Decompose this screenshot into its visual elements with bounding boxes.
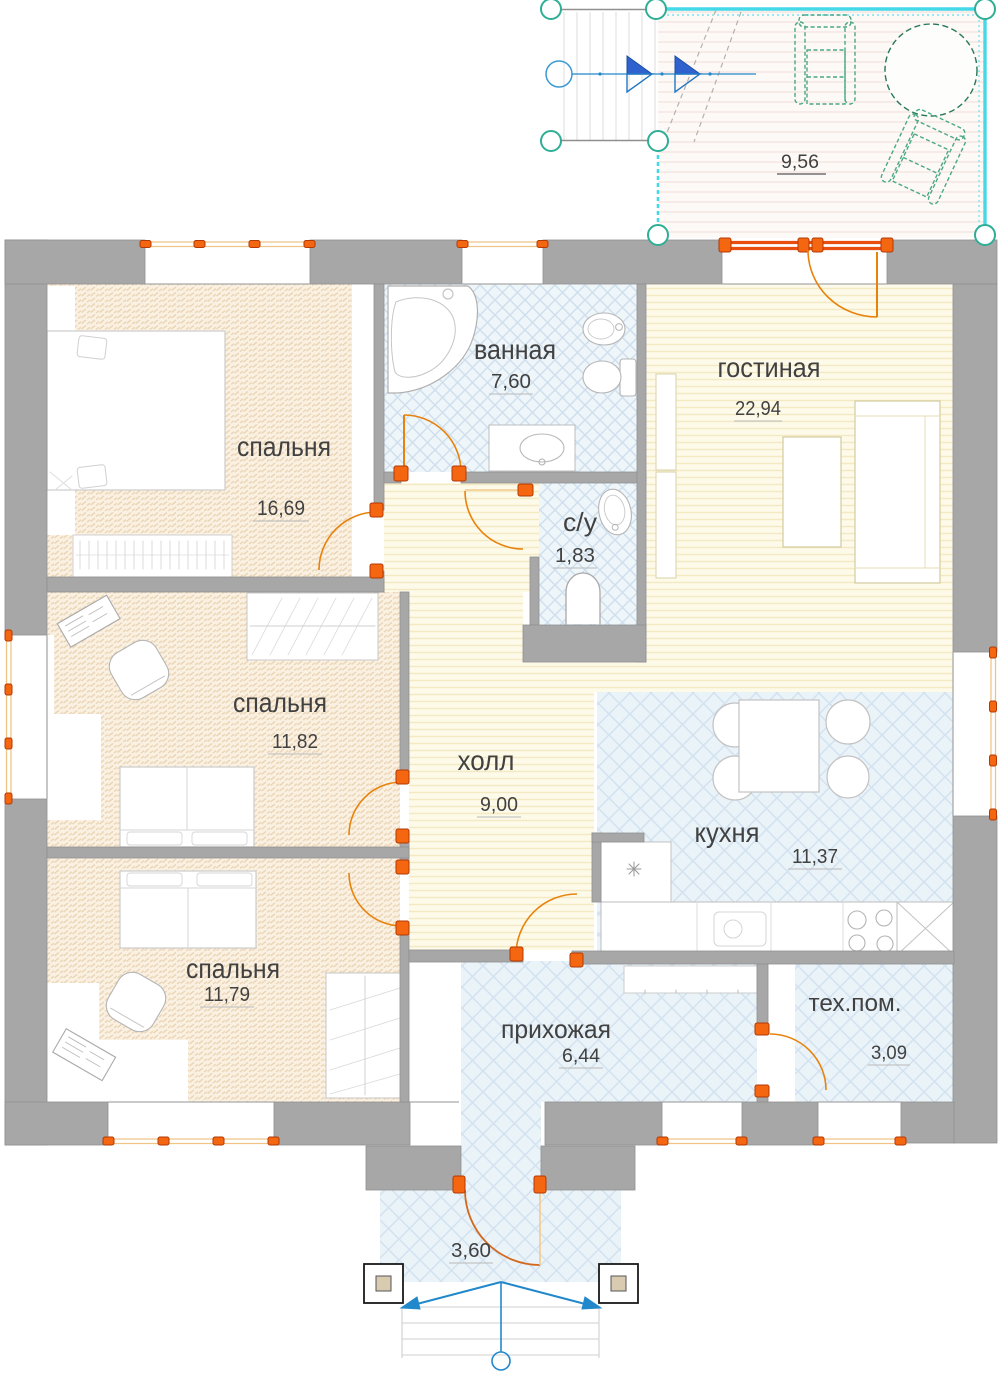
svg-text:11,37: 11,37 xyxy=(792,846,838,868)
svg-text:3,09: 3,09 xyxy=(871,1043,907,1064)
svg-text:тех.пом.: тех.пом. xyxy=(809,990,902,1017)
svg-text:с/у: с/у xyxy=(563,507,597,537)
svg-text:1,83: 1,83 xyxy=(555,545,595,567)
svg-text:гостиная: гостиная xyxy=(718,352,821,383)
svg-text:холл: холл xyxy=(458,745,515,776)
svg-text:22,94: 22,94 xyxy=(735,398,781,420)
svg-text:9,00: 9,00 xyxy=(480,794,518,816)
svg-text:спальня: спальня xyxy=(186,953,280,984)
svg-text:11,82: 11,82 xyxy=(272,731,318,753)
svg-text:спальня: спальня xyxy=(233,687,327,718)
svg-text:16,69: 16,69 xyxy=(257,497,305,520)
svg-text:11,79: 11,79 xyxy=(204,984,250,1006)
svg-text:7,60: 7,60 xyxy=(491,371,531,393)
svg-text:кухня: кухня xyxy=(695,817,760,848)
svg-text:6,44: 6,44 xyxy=(562,1046,600,1067)
svg-text:ванная: ванная xyxy=(474,334,556,365)
svg-text:прихожая: прихожая xyxy=(501,1014,611,1044)
svg-text:9,56: 9,56 xyxy=(781,152,819,173)
svg-text:3,60: 3,60 xyxy=(451,1240,491,1262)
svg-text:спальня: спальня xyxy=(237,431,331,462)
